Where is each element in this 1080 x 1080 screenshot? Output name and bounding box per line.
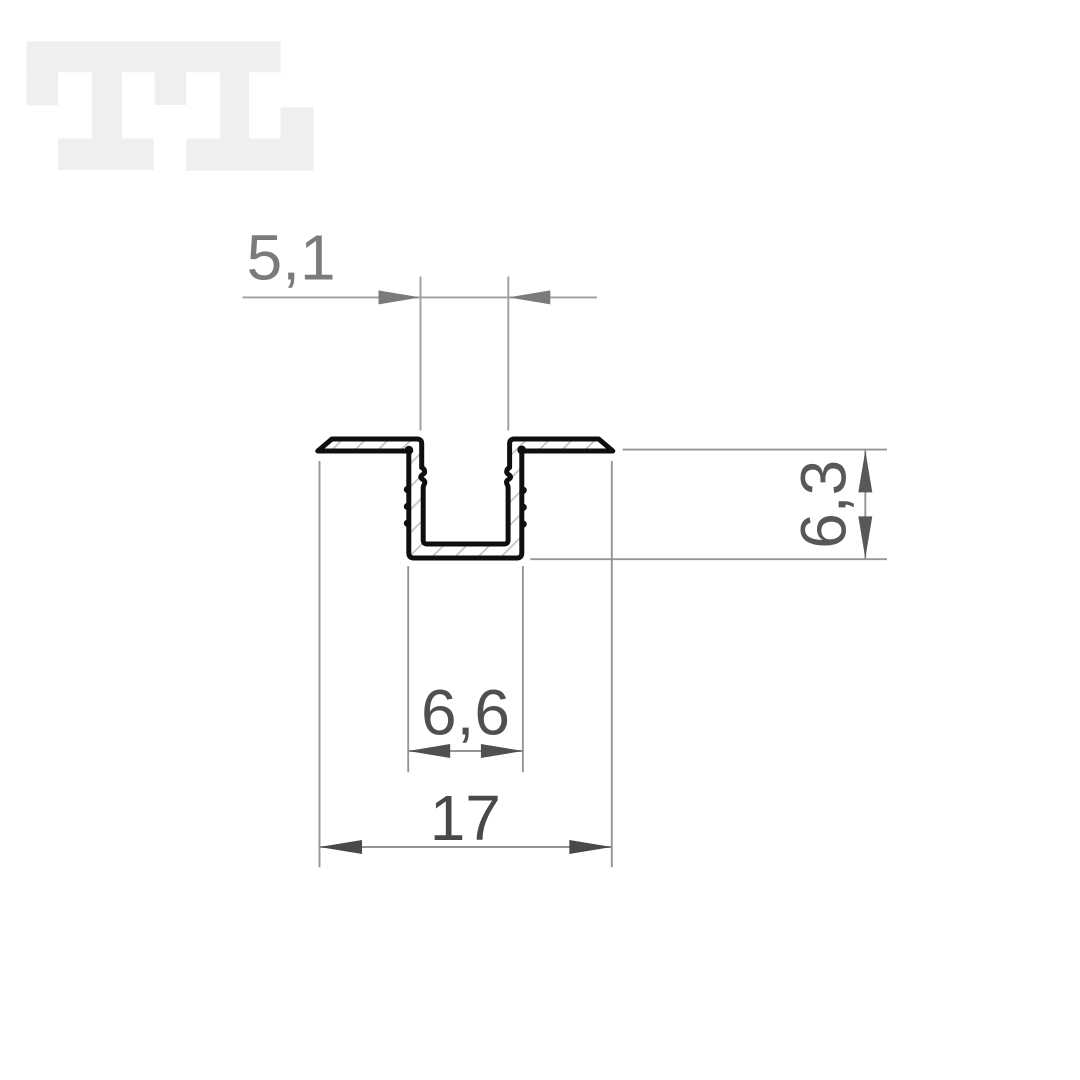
svg-text:6,6: 6,6 (421, 676, 510, 748)
svg-text:6,3: 6,3 (788, 460, 860, 549)
svg-text:5,1: 5,1 (247, 222, 336, 294)
svg-text:17: 17 (430, 782, 501, 854)
